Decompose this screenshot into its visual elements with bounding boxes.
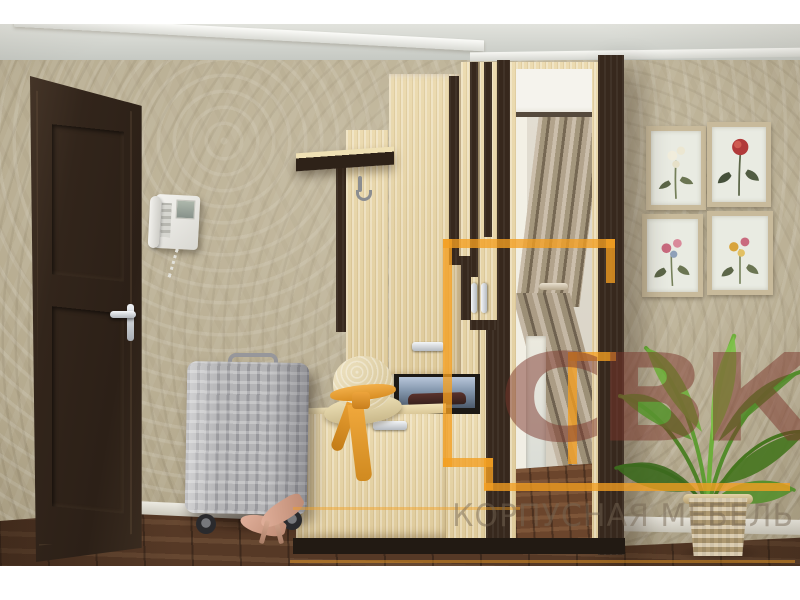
wenge-strip-mid-a xyxy=(470,62,478,277)
middle-door-handle-right xyxy=(481,283,487,313)
door-panel-upper xyxy=(52,124,124,282)
mirror-reflection-curtain-upper xyxy=(516,117,592,307)
mirror-reflection-floor xyxy=(516,464,592,545)
wardrobe-plinth xyxy=(293,538,625,554)
door-handle-lever xyxy=(110,311,136,318)
mirror-reflection-curtain-tie xyxy=(539,283,568,290)
wenge-strip-step-5 xyxy=(486,330,497,548)
picture-frame-red-rose xyxy=(707,122,771,207)
picture-frame-mixed-flowers xyxy=(707,211,773,295)
wenge-strip-mid-b xyxy=(484,62,492,237)
door-panel-lower xyxy=(52,306,124,514)
picture-frame-white-flowers xyxy=(646,126,706,210)
shoe-cabinet-handle xyxy=(373,421,407,430)
mirror-reflection-window-light xyxy=(526,336,546,479)
picture-frame-pink-posy xyxy=(642,214,703,297)
wenge-strip-step-4 xyxy=(470,320,497,330)
tall-cabinet-handle xyxy=(412,342,444,351)
wenge-strip-mirror-left xyxy=(497,60,510,550)
middle-door-handle-left xyxy=(471,283,477,313)
intercom-buttons xyxy=(160,203,172,237)
letterbox-band-bottom xyxy=(0,566,800,600)
hat-ribbon-knot xyxy=(352,392,370,409)
product-photo-scene: СВК КОРПУСНАЯ МЕБЕЛЬ xyxy=(0,0,800,600)
suitcase-wheel-left xyxy=(196,514,216,534)
letterbox-band-top xyxy=(0,0,800,24)
intercom-screen xyxy=(176,200,196,220)
silver-suitcase xyxy=(185,361,310,515)
wenge-strip-step-3 xyxy=(461,256,471,320)
door-handle-plate xyxy=(127,304,134,341)
wicker-basket xyxy=(686,498,750,556)
mirror xyxy=(516,69,592,545)
wenge-strip-step-1 xyxy=(449,76,459,256)
